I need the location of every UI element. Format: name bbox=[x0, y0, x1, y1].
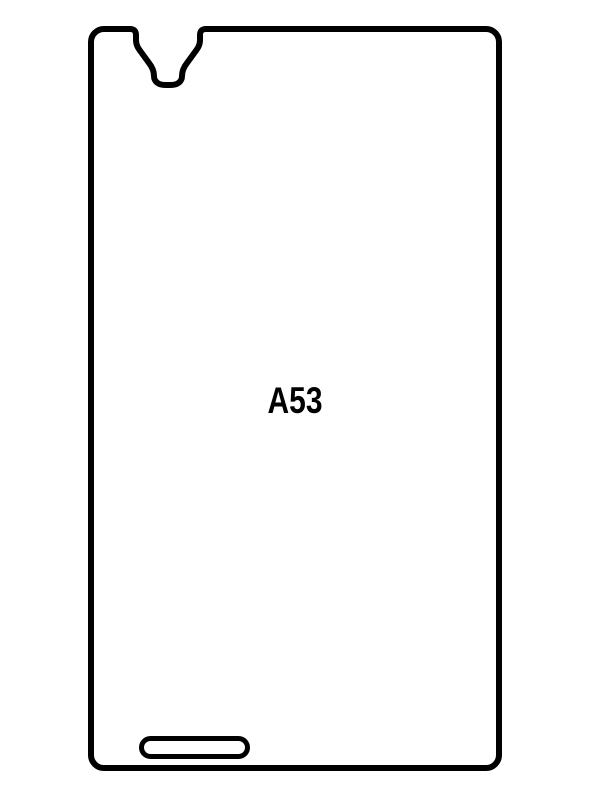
speaker-slot-cutout bbox=[142, 739, 248, 757]
model-label: A53 bbox=[268, 380, 323, 421]
product-image: A53 bbox=[0, 0, 600, 800]
screen-protector-diagram: A53 bbox=[0, 0, 600, 800]
